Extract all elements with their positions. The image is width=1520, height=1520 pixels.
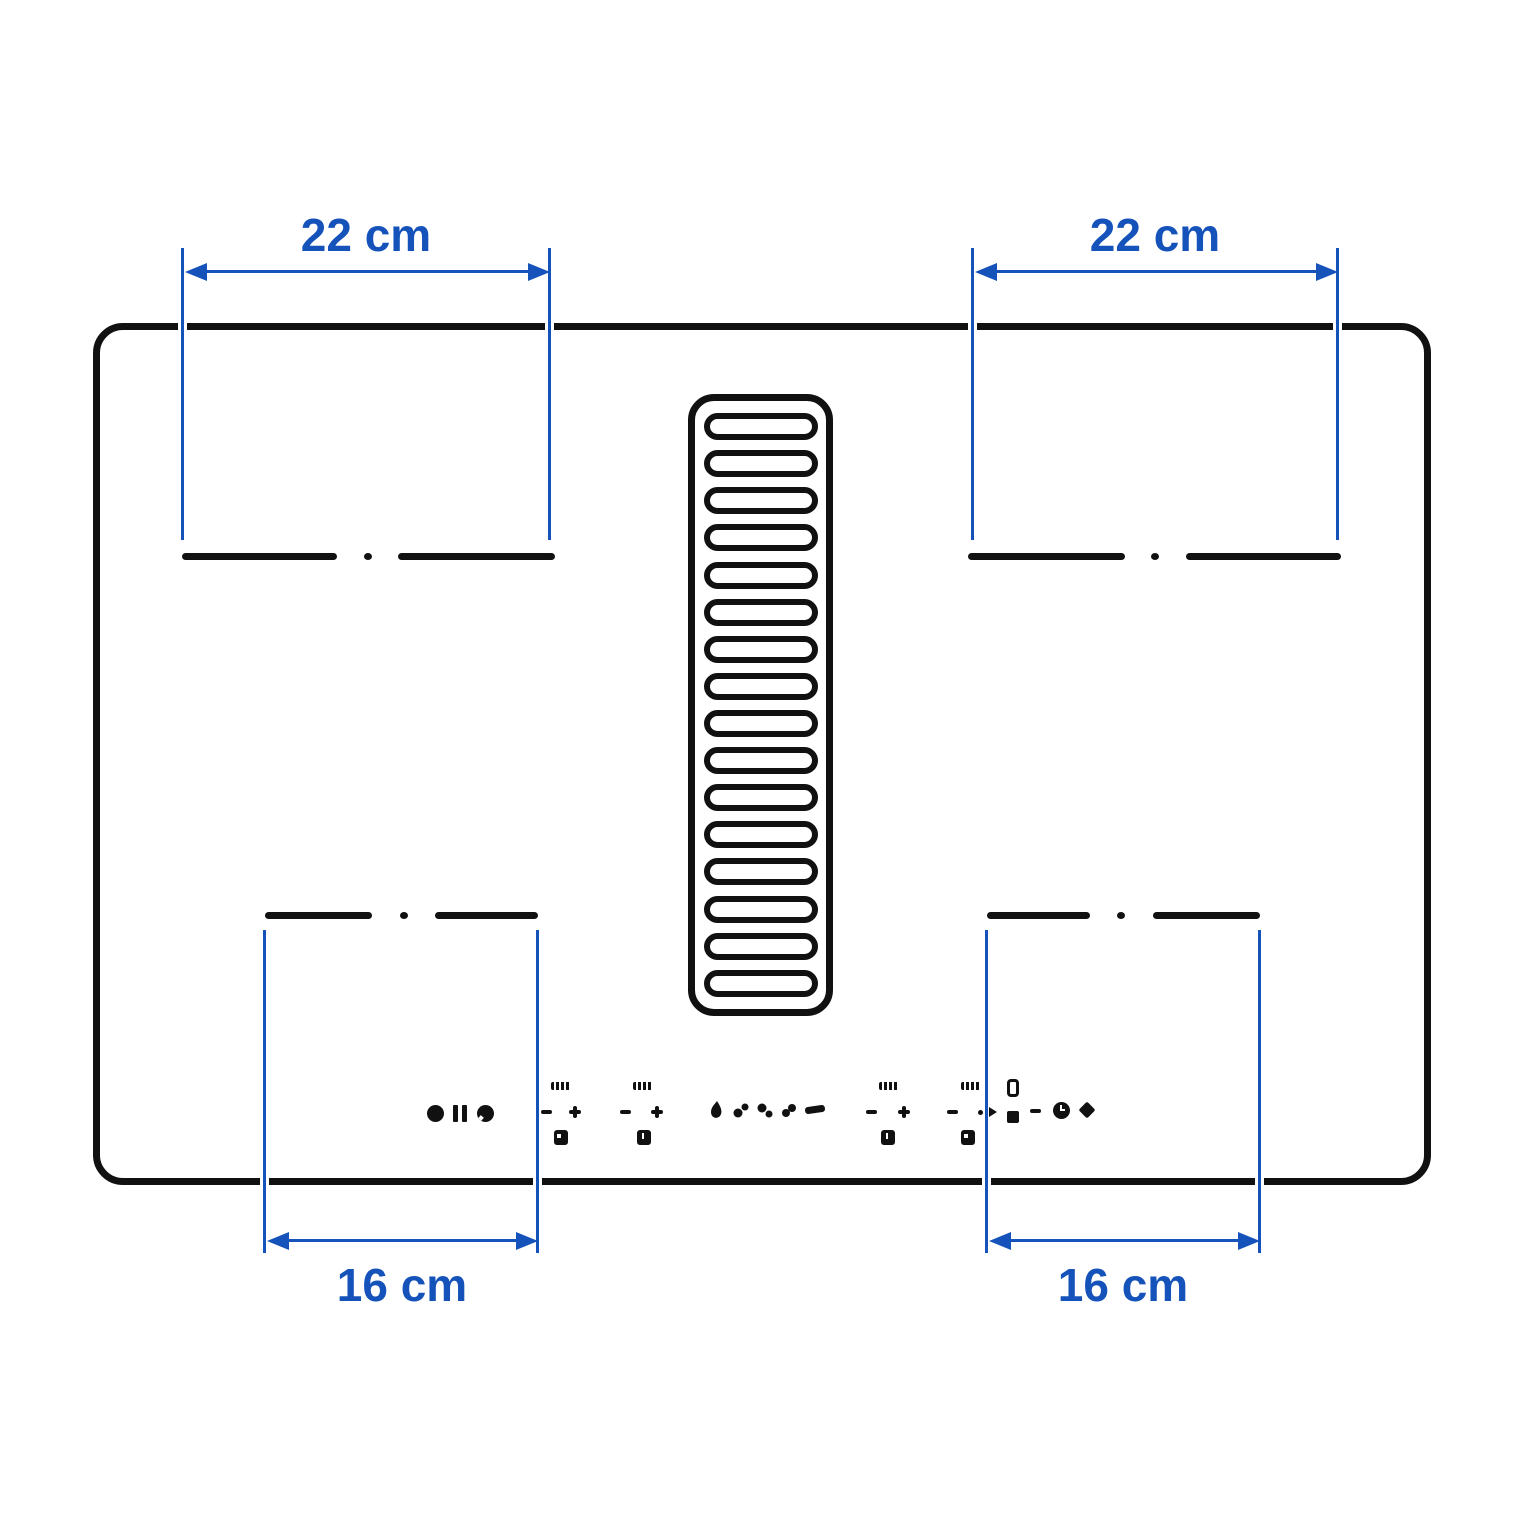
grille-slat bbox=[704, 821, 818, 848]
extension-line bbox=[533, 930, 542, 1253]
grille-slat bbox=[704, 896, 818, 923]
minus-button bbox=[620, 1110, 631, 1114]
fan-speed-3-icon bbox=[757, 1102, 774, 1119]
dimension-arrow-top-right bbox=[993, 270, 1320, 273]
grille-slat bbox=[704, 858, 818, 885]
fan-auto-icon bbox=[781, 1102, 798, 1119]
extension-line bbox=[982, 930, 991, 1253]
dimension-label-bottom-left: 16 cm bbox=[337, 1258, 467, 1312]
dimension-label-top-left: 22 cm bbox=[301, 208, 431, 262]
zone-line-top-right bbox=[968, 553, 1341, 560]
grille-slat bbox=[704, 487, 818, 514]
minus-button bbox=[541, 1110, 552, 1114]
zone-display bbox=[551, 1082, 571, 1090]
grille-slat bbox=[704, 599, 818, 626]
grille-slat bbox=[704, 562, 818, 589]
plus-button bbox=[569, 1106, 581, 1118]
grille-slat bbox=[704, 970, 818, 997]
extension-line bbox=[260, 930, 269, 1253]
timer-display bbox=[1007, 1079, 1019, 1097]
dimension-label-top-right: 22 cm bbox=[1090, 208, 1220, 262]
extension-line bbox=[545, 248, 554, 540]
zone-display bbox=[879, 1082, 899, 1090]
plus-button bbox=[898, 1106, 910, 1118]
grille-slat bbox=[704, 673, 818, 700]
extension-line bbox=[1333, 248, 1342, 540]
plus-button bbox=[651, 1106, 663, 1118]
dimension-label-bottom-right: 16 cm bbox=[1058, 1258, 1188, 1312]
arrowhead-left-icon bbox=[975, 263, 997, 281]
dimension-arrow-bottom-right bbox=[1007, 1239, 1240, 1242]
arrowhead-left-icon bbox=[989, 1232, 1011, 1250]
power-dot-icon bbox=[427, 1105, 444, 1122]
grille-slat bbox=[704, 710, 818, 737]
fan-speed-2-icon bbox=[733, 1102, 750, 1119]
grille-slat bbox=[704, 413, 818, 440]
arrowhead-right-icon bbox=[516, 1232, 538, 1250]
arrowhead-right-icon bbox=[1316, 263, 1338, 281]
timer-minus bbox=[1030, 1109, 1041, 1113]
extension-line bbox=[178, 248, 187, 540]
extractor-grille bbox=[688, 394, 833, 1016]
power-icon bbox=[477, 1105, 494, 1122]
arrowhead-left-icon bbox=[185, 263, 207, 281]
grille-slat bbox=[704, 933, 818, 960]
minus-button bbox=[947, 1110, 958, 1114]
clock-icon bbox=[1053, 1102, 1070, 1119]
zone-display bbox=[961, 1082, 981, 1090]
arrowhead-right-icon bbox=[528, 263, 550, 281]
arrowhead-right-icon bbox=[1238, 1232, 1260, 1250]
dimension-arrow-bottom-left bbox=[285, 1239, 518, 1242]
zone-indicator-square bbox=[554, 1130, 568, 1145]
small-arrow-icon bbox=[989, 1107, 997, 1117]
grille-slat bbox=[704, 784, 818, 811]
fan-speed-1-icon bbox=[708, 1099, 726, 1121]
extension-line bbox=[968, 248, 977, 540]
dimension-arrow-top-left bbox=[203, 270, 530, 273]
zone-display bbox=[633, 1082, 653, 1090]
zone-indicator-square bbox=[881, 1130, 895, 1145]
zone-line-top-left bbox=[182, 553, 555, 560]
minus-button bbox=[866, 1110, 877, 1114]
timer-square bbox=[1007, 1111, 1019, 1123]
extension-line bbox=[1255, 930, 1264, 1253]
zone-indicator-square bbox=[637, 1130, 651, 1145]
grille-slat bbox=[704, 450, 818, 477]
zone-line-bottom-right bbox=[987, 912, 1260, 919]
grille-slat bbox=[704, 524, 818, 551]
arrowhead-left-icon bbox=[267, 1232, 289, 1250]
pause-icon bbox=[453, 1105, 458, 1122]
zone-line-bottom-left bbox=[265, 912, 538, 919]
grille-slat bbox=[704, 747, 818, 774]
dot-icon bbox=[978, 1110, 983, 1115]
grille-slat bbox=[704, 636, 818, 663]
zone-indicator-square bbox=[961, 1130, 975, 1145]
dimension-diagram: 22 cm 22 cm 16 cm 16 cm bbox=[0, 0, 1520, 1520]
